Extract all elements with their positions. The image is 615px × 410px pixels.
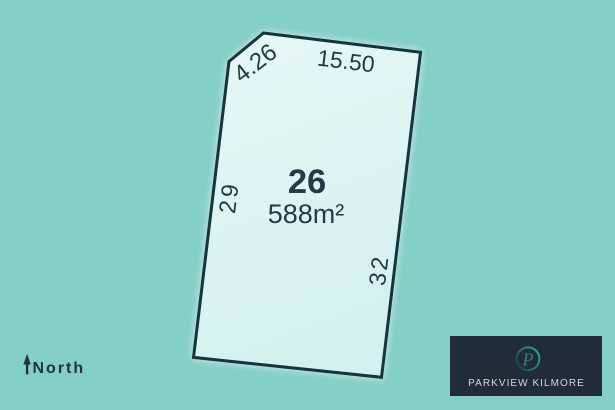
svg-text:26: 26 (288, 163, 326, 201)
svg-text:32: 32 (364, 253, 394, 287)
svg-text:588m²: 588m² (268, 199, 345, 229)
svg-text:North: North (33, 360, 86, 377)
svg-text:PARKVIEW KILMORE: PARKVIEW KILMORE (468, 378, 585, 389)
svg-text:P: P (522, 349, 534, 369)
svg-text:29: 29 (214, 180, 244, 215)
